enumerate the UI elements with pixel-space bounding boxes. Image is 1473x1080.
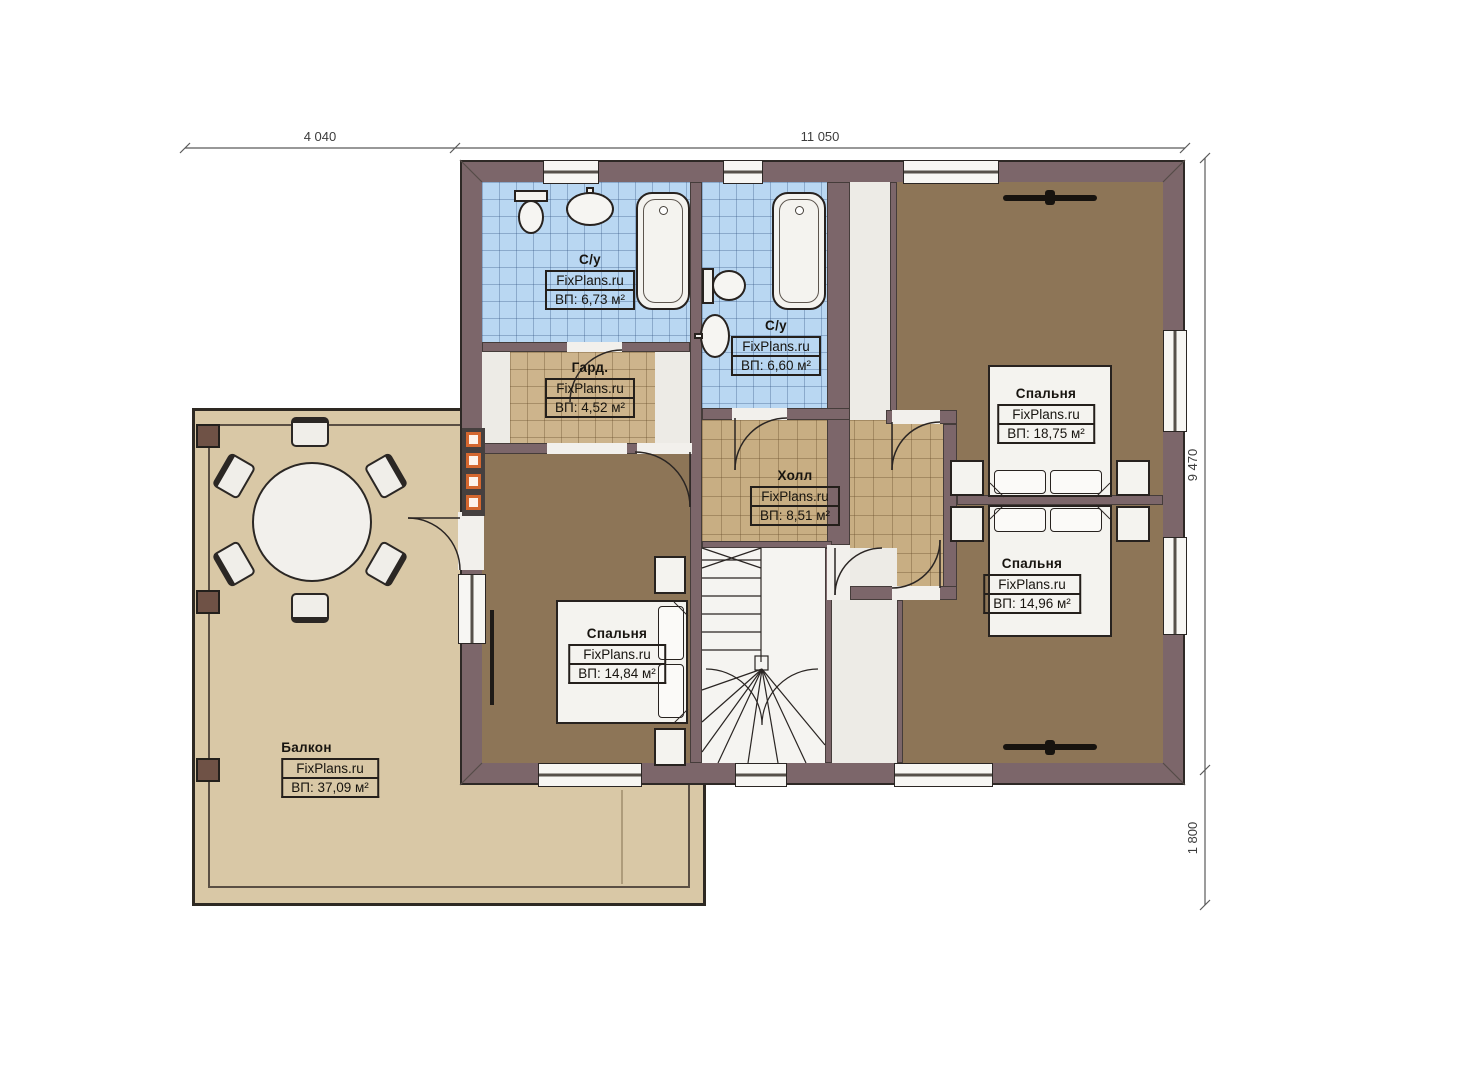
room-area: ВП: 6,73 м² [545, 291, 635, 310]
room-label-bedroom-top-right: Спальня FixPlans.ru ВП: 18,75 м² [997, 386, 1095, 444]
watermark: FixPlans.ru [731, 336, 821, 357]
room-area: ВП: 8,51 м² [750, 507, 840, 526]
watermark: FixPlans.ru [545, 378, 635, 399]
room-area: ВП: 18,75 м² [997, 425, 1095, 444]
door-arc [835, 548, 882, 595]
door-arc [735, 418, 787, 470]
room-label-bedroom-left: Спальня FixPlans.ru ВП: 14,84 м² [568, 626, 666, 684]
door-arc [892, 540, 940, 588]
room-area: ВП: 4,52 м² [545, 399, 635, 418]
room-label-wardrobe: Гард. FixPlans.ru ВП: 4,52 м² [545, 360, 635, 418]
room-label-bathroom-top: С/у FixPlans.ru ВП: 6,73 м² [545, 252, 635, 310]
room-area: ВП: 37,09 м² [281, 779, 379, 798]
door-arc [408, 518, 460, 570]
watermark: FixPlans.ru [281, 758, 379, 779]
watermark: FixPlans.ru [997, 404, 1095, 425]
watermark: FixPlans.ru [983, 574, 1081, 595]
room-label-balcony: Балкон FixPlans.ru ВП: 37,09 м² [281, 740, 379, 798]
room-area: ВП: 14,96 м² [983, 595, 1081, 614]
watermark: FixPlans.ru [750, 486, 840, 507]
room-label-bedroom-bottom-right: Спальня FixPlans.ru ВП: 14,96 м² [983, 556, 1081, 614]
room-area: ВП: 14,84 м² [568, 665, 666, 684]
staircase [702, 548, 825, 763]
room-label-hall: Холл FixPlans.ru ВП: 8,51 м² [750, 468, 840, 526]
room-label-bathroom-middle: С/у FixPlans.ru ВП: 6,60 м² [731, 318, 821, 376]
dim-top-right: 11 050 [801, 129, 840, 144]
watermark: FixPlans.ru [568, 644, 666, 665]
room-area: ВП: 6,60 м² [731, 357, 821, 376]
watermark: FixPlans.ru [545, 270, 635, 291]
floor-plan: 4 040 11 050 9 470 1 800 С/у FixPlans.ru… [0, 0, 1473, 1080]
linework-overlay: 4 040 11 050 9 470 1 800 [0, 0, 1473, 1080]
dim-right-lower: 1 800 [1185, 822, 1200, 855]
dim-top-left: 4 040 [304, 129, 337, 144]
door-arc [892, 422, 940, 470]
dim-right-upper: 9 470 [1185, 449, 1200, 482]
door-arc [635, 452, 690, 507]
